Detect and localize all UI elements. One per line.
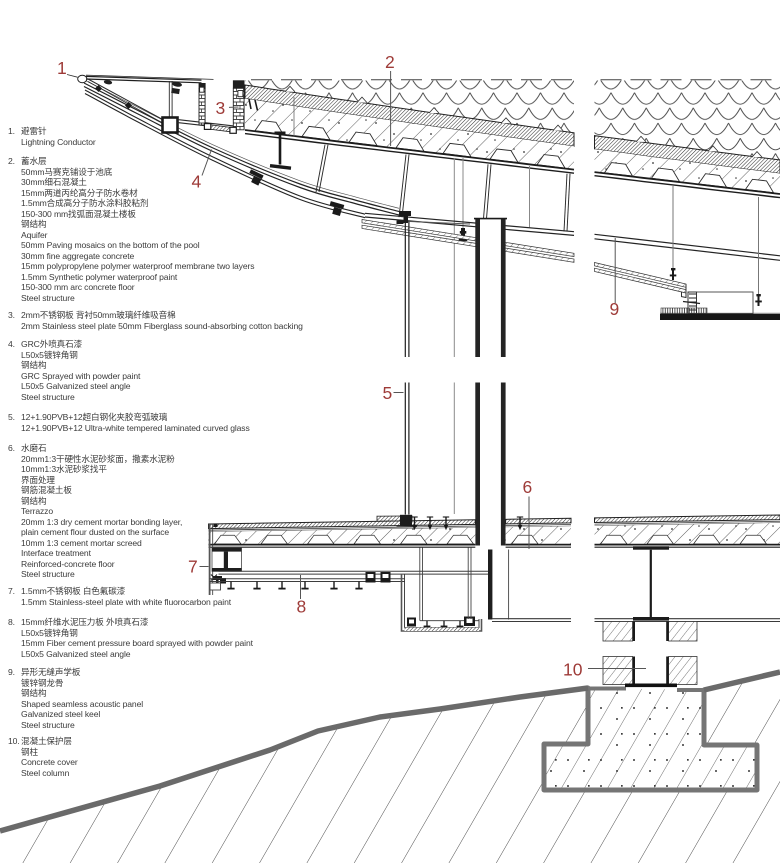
svg-text:5: 5 xyxy=(383,383,393,403)
svg-text:10: 10 xyxy=(563,660,583,680)
svg-text:9: 9 xyxy=(610,299,620,319)
svg-text:3: 3 xyxy=(216,98,226,118)
svg-text:1: 1 xyxy=(57,58,67,78)
svg-text:6: 6 xyxy=(523,477,533,497)
svg-text:8: 8 xyxy=(297,597,307,617)
svg-text:7: 7 xyxy=(188,557,198,577)
svg-text:2: 2 xyxy=(385,52,395,72)
